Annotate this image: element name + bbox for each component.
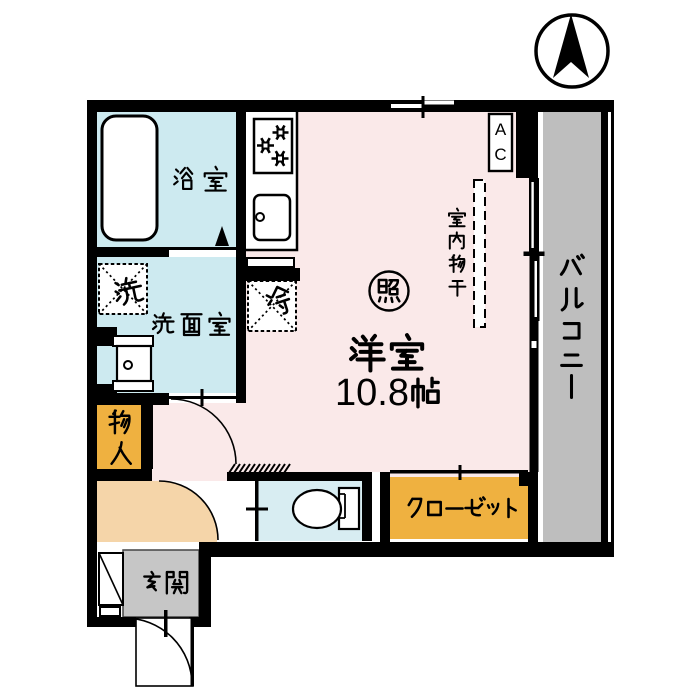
svg-text:A: A [495,120,507,139]
svg-text:C: C [494,145,506,164]
svg-text:10.8: 10.8 [335,372,409,414]
